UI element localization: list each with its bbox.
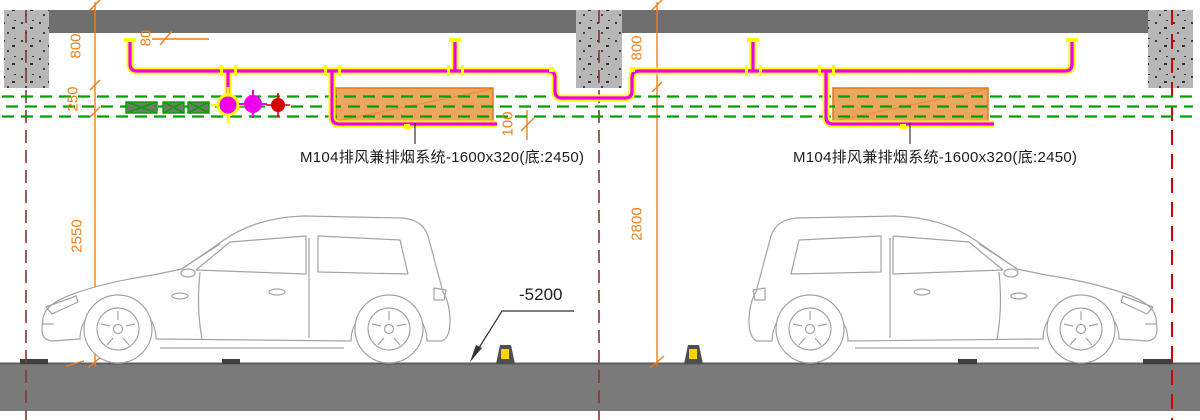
dim-right-800: 800 <box>629 35 646 60</box>
drawing-linework <box>0 0 1200 420</box>
dim-right-2800: 2800 <box>629 207 646 240</box>
car-right <box>749 216 1157 363</box>
cable-tray-sections <box>126 102 209 113</box>
dimension-line-right <box>650 0 664 368</box>
dimension-100-marks <box>521 110 534 140</box>
level-leader <box>470 311 574 362</box>
duct2-label: M104排风兼排烟系统-1600x320(底:2450) <box>793 146 1077 167</box>
valve-symbol-2 <box>239 90 267 118</box>
dim-left-800: 800 <box>68 33 85 58</box>
dimension-80-marks <box>152 31 209 45</box>
duct1-label: M104排风兼排烟系统-1600x320(底:2450) <box>300 146 584 167</box>
dim-duct-100: 100 <box>500 111 517 136</box>
floor-slab <box>0 363 1200 411</box>
wheel-stop-2 <box>684 345 703 364</box>
floor-level-label: -5200 <box>519 285 562 305</box>
car-left <box>42 216 450 363</box>
duct-2 <box>833 88 988 122</box>
cad-drawing-canvas: 800 250 2550 80 100 800 2800 M104排风兼排烟系统… <box>0 0 1200 420</box>
dim-left-250: 250 <box>65 86 82 111</box>
dim-left-2550: 2550 <box>69 219 86 252</box>
dim-top-80: 80 <box>138 30 155 47</box>
column-right <box>1148 10 1193 88</box>
wheel-stop-1 <box>496 345 515 364</box>
